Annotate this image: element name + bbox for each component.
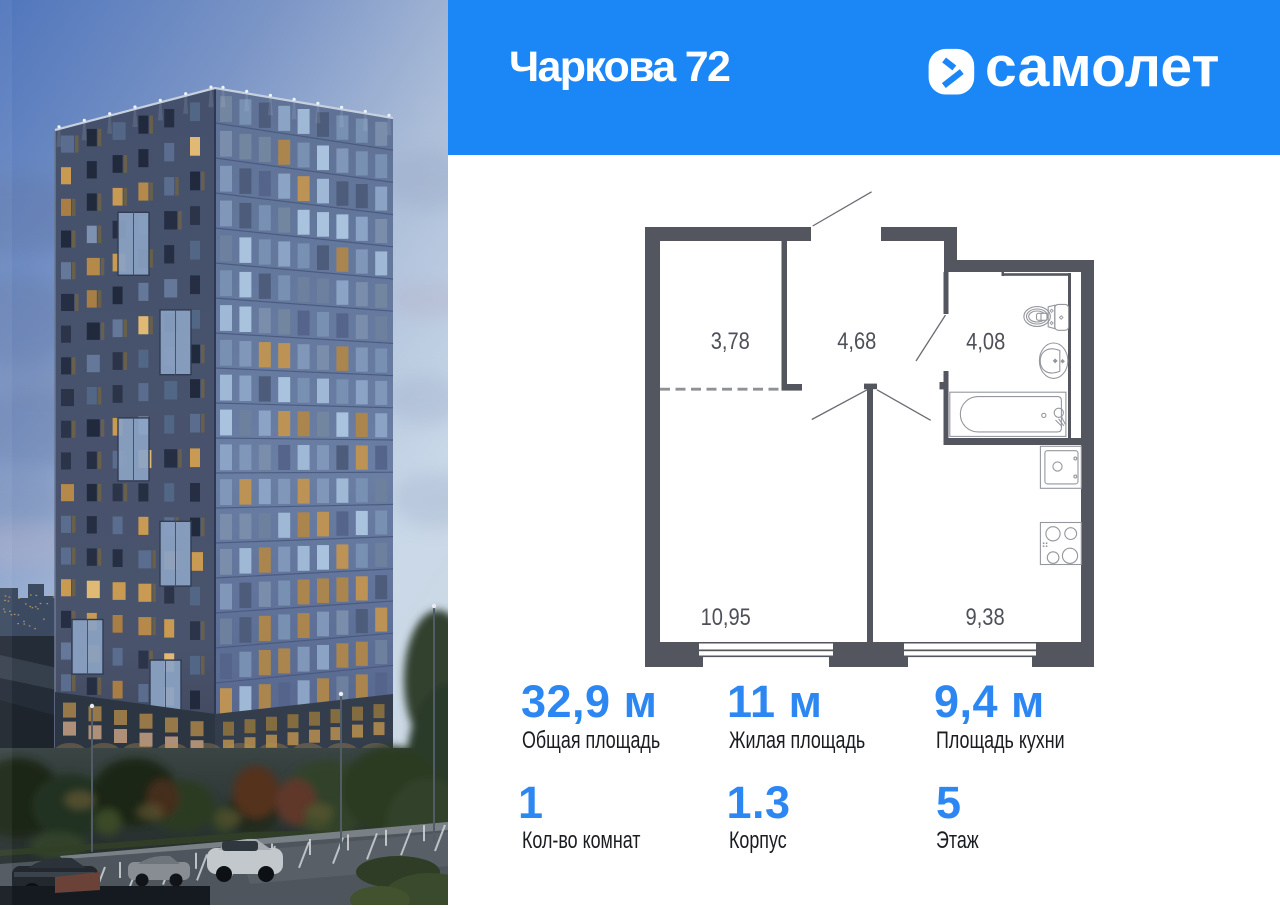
- svg-text:9,38: 9,38: [966, 603, 1005, 630]
- svg-text:10,95: 10,95: [701, 603, 751, 630]
- svg-text:3,78: 3,78: [711, 327, 750, 354]
- svg-text:4,08: 4,08: [966, 328, 1005, 355]
- svg-text:4,68: 4,68: [837, 327, 876, 354]
